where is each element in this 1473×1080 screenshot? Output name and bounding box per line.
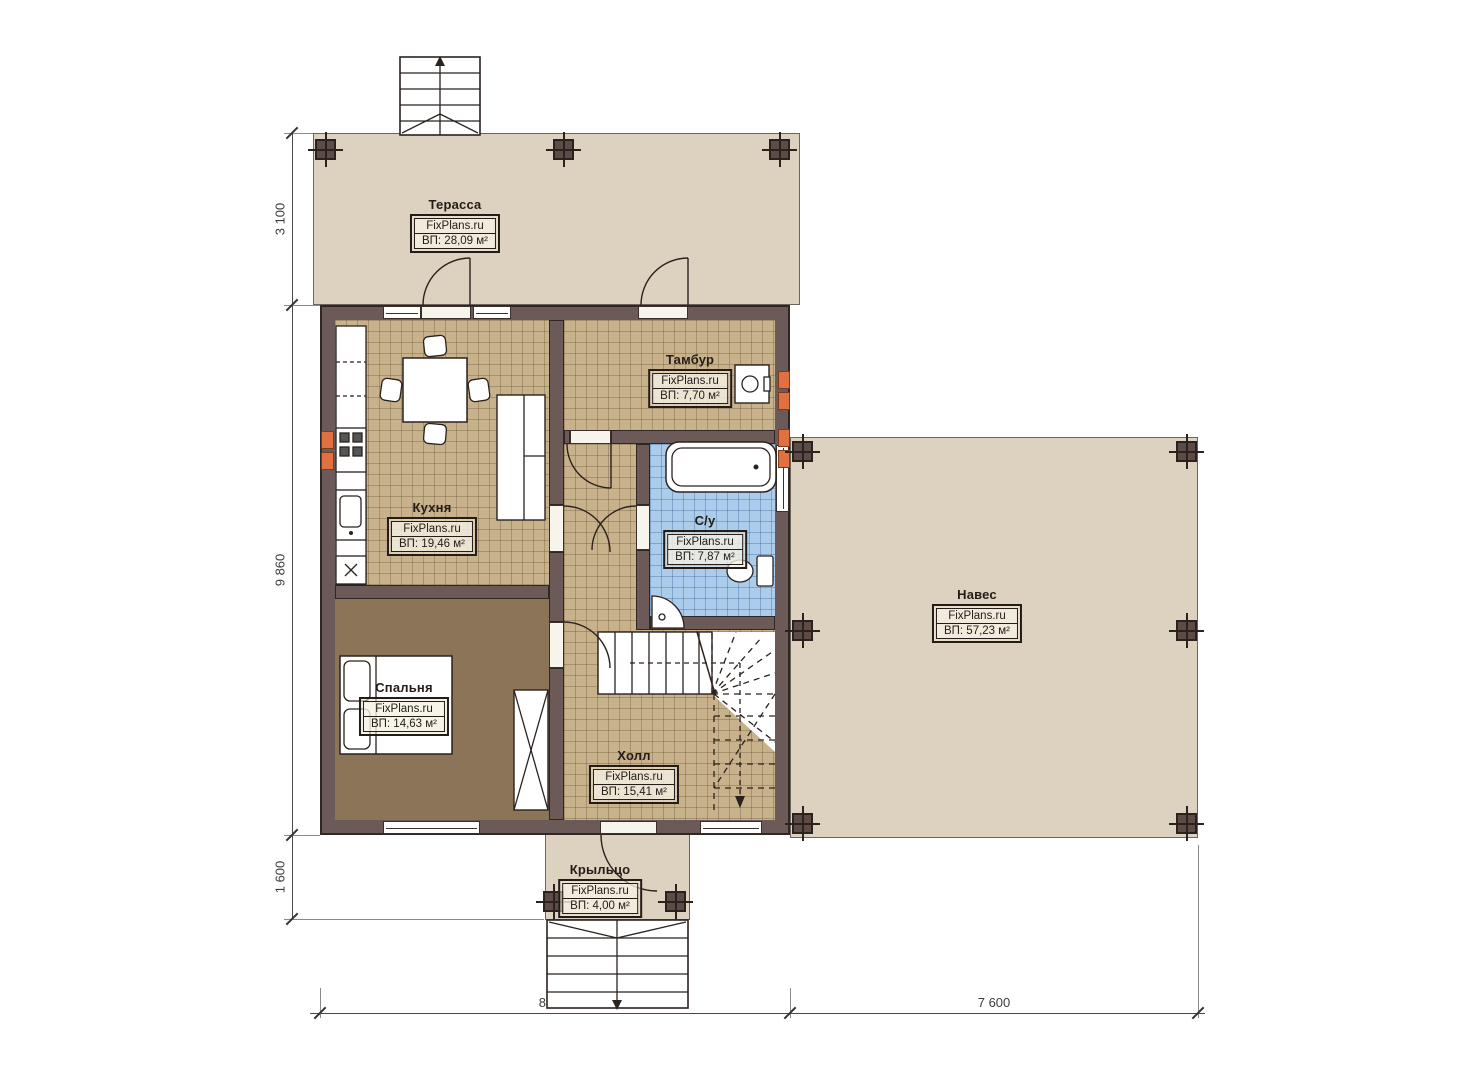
room-area: ВП: 7,87 м² xyxy=(667,550,743,565)
canopy-post xyxy=(792,441,813,462)
room-info-box: FixPlans.ru ВП: 15,41 м² xyxy=(589,765,679,804)
room-info-box: FixPlans.ru ВП: 4,00 м² xyxy=(558,879,642,918)
room-name: Холл xyxy=(589,748,679,763)
dimension-bottom-house: 8 860 xyxy=(539,995,572,1010)
window-pane xyxy=(386,313,418,314)
dimension-left-house: 9 860 xyxy=(273,554,288,587)
room-area: ВП: 7,70 м² xyxy=(652,389,728,404)
room-label-bathroom: С/у FixPlans.ru ВП: 7,87 м² xyxy=(663,513,747,569)
porch-post xyxy=(665,891,686,912)
wall-kitchen-hall xyxy=(549,552,564,622)
window-pane xyxy=(703,828,759,829)
room-label-terrace: Терасса FixPlans.ru ВП: 28,09 м² xyxy=(410,197,500,253)
door-opening-kitchen-terrace xyxy=(421,306,471,319)
terrace-post xyxy=(553,139,574,160)
terrace-post xyxy=(769,139,790,160)
room-brand: FixPlans.ru xyxy=(936,608,1018,624)
room-brand: FixPlans.ru xyxy=(667,534,743,550)
room-label-bedroom: Спальня FixPlans.ru ВП: 14,63 м² xyxy=(359,680,449,736)
wall-kitchen-bedroom xyxy=(335,585,549,599)
room-name: Крыльцо xyxy=(558,862,642,877)
extension-line xyxy=(1198,845,1199,1018)
room-brand: FixPlans.ru xyxy=(363,701,445,717)
room-label-kitchen: Кухня FixPlans.ru ВП: 19,46 м² xyxy=(387,500,477,556)
canopy-post xyxy=(1176,441,1197,462)
door-opening-tambur-hall xyxy=(570,430,611,444)
canopy-post xyxy=(792,620,813,641)
room-label-canopy: Навес FixPlans.ru ВП: 57,23 м² xyxy=(932,587,1022,643)
room-area: ВП: 19,46 м² xyxy=(391,537,473,552)
dimension-line-bottom xyxy=(310,1013,1205,1014)
radiator xyxy=(778,371,790,389)
room-brand: FixPlans.ru xyxy=(652,373,728,389)
room-area: ВП: 14,63 м² xyxy=(363,717,445,732)
radiator xyxy=(321,452,334,470)
room-name: Навес xyxy=(932,587,1022,602)
radiator xyxy=(778,392,790,410)
room-name: Тамбур xyxy=(648,352,732,367)
room-brand: FixPlans.ru xyxy=(562,883,638,899)
canopy-post xyxy=(1176,620,1197,641)
room-area: ВП: 4,00 м² xyxy=(562,899,638,914)
room-info-box: FixPlans.ru ВП: 28,09 м² xyxy=(410,214,500,253)
terrace-stairs xyxy=(400,56,480,135)
dimension-left-terrace: 3 100 xyxy=(273,203,288,236)
room-label-hall: Холл FixPlans.ru ВП: 15,41 м² xyxy=(589,748,679,804)
room-name: Спальня xyxy=(359,680,449,695)
room-area: ВП: 15,41 м² xyxy=(593,785,675,800)
door-opening-bedroom-hall xyxy=(549,622,564,668)
room-brand: FixPlans.ru xyxy=(391,521,473,537)
wall-kitchen-hall xyxy=(549,320,564,505)
radiator xyxy=(321,431,334,449)
wall-tambur-hall xyxy=(611,430,775,444)
door-opening-tambur-terrace xyxy=(638,306,688,319)
window-kitchen-right xyxy=(473,306,511,319)
room-area: ВП: 28,09 м² xyxy=(414,234,496,249)
radiator xyxy=(778,429,790,447)
door-opening-bathroom xyxy=(636,505,650,550)
room-brand: FixPlans.ru xyxy=(414,218,496,234)
room-brand: FixPlans.ru xyxy=(593,769,675,785)
window-kitchen-left xyxy=(383,306,421,319)
room-info-box: FixPlans.ru ВП: 7,70 м² xyxy=(648,369,732,408)
room-label-porch: Крыльцо FixPlans.ru ВП: 4,00 м² xyxy=(558,862,642,918)
room-info-box: FixPlans.ru ВП: 19,46 м² xyxy=(387,517,477,556)
wall-bathroom-hall xyxy=(636,444,650,505)
wall-bathroom-hall xyxy=(636,550,650,630)
window-pane xyxy=(476,313,508,314)
floor-plan: 3 100 9 860 1 600 8 860 7 600 xyxy=(0,0,1473,1080)
room-info-box: FixPlans.ru ВП: 7,87 м² xyxy=(663,530,747,569)
room-name: Терасса xyxy=(410,197,500,212)
door-opening-front xyxy=(600,821,657,834)
window-bedroom xyxy=(383,821,480,834)
room-info-box: FixPlans.ru ВП: 57,23 м² xyxy=(932,604,1022,643)
dimension-bottom-canopy: 7 600 xyxy=(978,995,1011,1010)
room-name: Кухня xyxy=(387,500,477,515)
extension-line xyxy=(284,919,544,920)
dimension-left-porch: 1 600 xyxy=(273,861,288,894)
room-name: С/у xyxy=(663,513,747,528)
door-opening-kitchen-hall xyxy=(549,505,564,552)
dimension-line-left xyxy=(292,133,293,920)
window-pane xyxy=(386,828,477,829)
room-info-box: FixPlans.ru ВП: 14,63 м² xyxy=(359,697,449,736)
window-hall xyxy=(700,821,762,834)
terrace-post xyxy=(315,139,336,160)
canopy-post xyxy=(1176,813,1197,834)
radiator xyxy=(778,450,790,468)
wall-bathroom-bottom xyxy=(650,616,775,630)
room-area: ВП: 57,23 м² xyxy=(936,624,1018,639)
room-label-tambur: Тамбур FixPlans.ru ВП: 7,70 м² xyxy=(648,352,732,408)
wall-bedroom-hall xyxy=(549,668,564,820)
canopy-post xyxy=(792,813,813,834)
